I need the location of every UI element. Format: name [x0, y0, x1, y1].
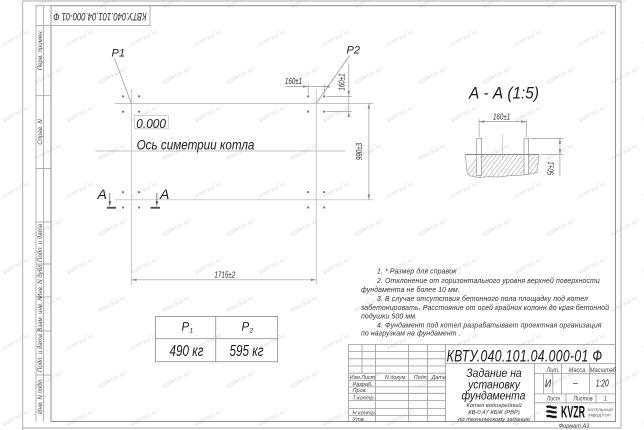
svg-text:по техническому заданию: по техническому заданию [458, 417, 530, 423]
svg-text:Подп.: Подп. [414, 375, 428, 381]
svg-text:1715±2: 1715±2 [214, 272, 235, 280]
svg-text:Инв. N подл.: Инв. N подл. [37, 378, 44, 414]
svg-text:0.000: 0.000 [136, 116, 166, 131]
svg-text:2. Отклонение от горизонтально: 2. Отклонение от горизонтального уровня … [376, 277, 600, 285]
svg-text:50±1: 50±1 [548, 162, 556, 176]
svg-text:Масса: Масса [569, 367, 586, 375]
svg-text:А: А [159, 186, 169, 202]
svg-text:КВТУ.040.101.04.000-01 Ф: КВТУ.040.101.04.000-01 Ф [447, 348, 603, 366]
svg-text:Р1: Р1 [112, 48, 125, 60]
svg-text:Т.контр.: Т.контр. [353, 395, 376, 401]
svg-text:Перв. примен.: Перв. примен. [37, 30, 44, 71]
svg-text:КОТЕЛЬНЫЙ: КОТЕЛЬНЫЙ [588, 407, 613, 412]
svg-text:160±1: 160±1 [493, 114, 510, 122]
svg-text:1: 1 [190, 328, 194, 335]
svg-text:КВ-0,47 КБЖ (РВР): КВ-0,47 КБЖ (РВР) [468, 410, 520, 416]
svg-text:160±1: 160±1 [339, 73, 347, 90]
svg-text:4. Фундамент под котел разраба: 4. Фундамент под котел разрабатывает про… [377, 321, 602, 329]
svg-text:Ось симетрии котла: Ось симетрии котла [137, 136, 255, 152]
svg-text:1: 1 [604, 396, 607, 402]
svg-text:490 кг: 490 кг [170, 341, 204, 359]
svg-text:Взам. инв. N: Взам. инв. N [37, 296, 44, 332]
svg-text:Лист: Лист [546, 396, 561, 402]
svg-text:Утв.: Утв. [352, 417, 366, 423]
svg-text:по нагрузкам на фундамент .: по нагрузкам на фундамент . [361, 329, 461, 337]
svg-text:Листов: Листов [572, 396, 592, 402]
svg-text:подушки 500 мм.: подушки 500 мм. [361, 313, 417, 321]
svg-text:И: И [545, 378, 552, 390]
svg-text:забетонировать. Расстояние от: забетонировать. Расстояние от осей крайн… [360, 304, 609, 312]
svg-text:фундамента: фундамента [462, 390, 526, 403]
svg-text:фундамента не более 10 мм.: фундамента не более 10 мм. [361, 286, 460, 294]
svg-text:Котел водогрейный: Котел водогрейный [466, 402, 522, 409]
svg-text:А: А [97, 186, 107, 202]
svg-text:Подп. и дата: Подп. и дата [37, 333, 44, 372]
svg-text:Р: Р [182, 322, 190, 334]
svg-text:Разраб.: Разраб. [353, 382, 373, 388]
svg-text:Р2: Р2 [347, 45, 360, 57]
svg-text:Дата: Дата [431, 375, 446, 381]
svg-text:Формат А3: Формат А3 [559, 424, 590, 430]
svg-text:Изм.Лист: Изм.Лист [350, 375, 376, 381]
svg-text:1:20: 1:20 [596, 377, 609, 389]
svg-text:ЗАВОД РЭП: ЗАВОД РЭП [588, 413, 611, 418]
svg-text:Р: Р [242, 322, 250, 334]
svg-text:Пров.: Пров. [353, 388, 368, 394]
svg-text:KVZR: KVZR [561, 403, 585, 422]
svg-text:1. * Размер для справок .: 1. * Размер для справок . [377, 267, 461, 275]
svg-text:Лит.: Лит. [546, 367, 560, 375]
svg-text:Справ. N: Справ. N [37, 119, 44, 145]
svg-text:2: 2 [249, 328, 254, 335]
svg-text:КВТУ.040.101.04.000-01 Ф: КВТУ.040.101.04.000-01 Ф [53, 9, 147, 22]
svg-text:Подп. и дата: Подп. и дата [37, 223, 44, 262]
svg-text:Инв. N дубл.: Инв. N дубл. [37, 263, 44, 298]
svg-text:3. В случае отсутствия бетонно: 3. В случае отсутствия бетонного пола пл… [377, 295, 588, 303]
svg-text:990±3: 990±3 [356, 143, 364, 160]
svg-text:N докум.: N докум. [385, 375, 407, 381]
svg-text:Н.контр.: Н.контр. [353, 411, 377, 417]
svg-text:А - А (1:5): А - А (1:5) [468, 85, 539, 103]
svg-text:160±1: 160±1 [285, 79, 302, 87]
svg-text:595 кг: 595 кг [230, 341, 264, 359]
svg-text:–: – [572, 378, 578, 388]
svg-text:Масштаб: Масштаб [590, 367, 617, 375]
